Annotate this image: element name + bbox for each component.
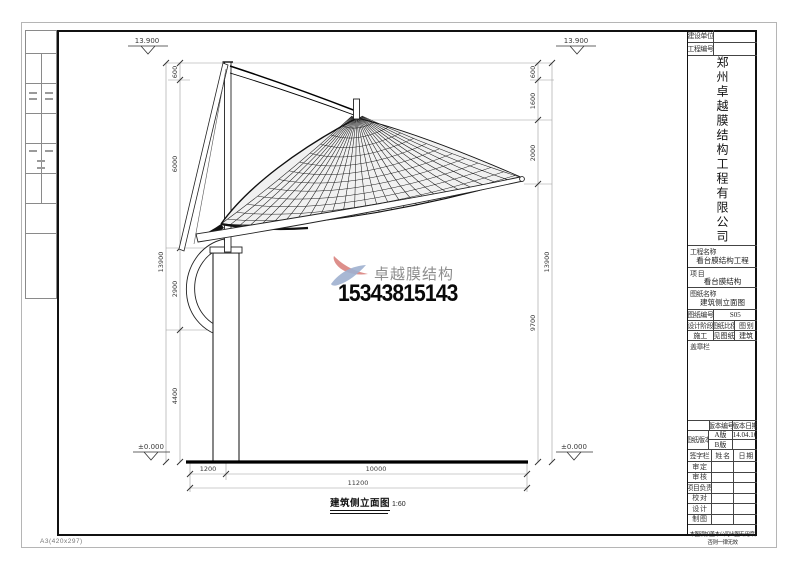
dim-label: 10000 [366, 465, 387, 473]
stay-rod [194, 69, 226, 244]
cables [230, 66, 356, 115]
version-label: 图纸版本 [688, 431, 709, 449]
dim-label: 2900 [171, 281, 179, 298]
owner-value [714, 30, 757, 42]
dim-label: 1600 [529, 93, 537, 110]
drawing-no-label: 图纸编号 [688, 310, 714, 320]
sign-row-label: 设 计 [688, 504, 712, 514]
drawing-name-cell: 图纸名称 建筑侧立面图 [688, 288, 757, 310]
right-dimension-chain: 600 1600 2000 9700 13900 [529, 66, 551, 331]
drawing-caption: 建筑侧立面图 1:60 [330, 493, 390, 514]
stamp-label: 盖章栏 [690, 342, 710, 352]
level-labels: 13.900 13.900 ±0.000 ±0.000 [135, 37, 589, 451]
level-label: ±0.000 [138, 443, 164, 451]
item-value: 看台膜结构 [688, 276, 757, 287]
owner-label: 建设单位 [688, 30, 714, 42]
drawing-title: 建筑侧立面图 [330, 495, 390, 511]
title-block: 建设单位 工程编号 郑州卓越膜结构工程有限公司 工程名称 看台膜结构工程 项 目… [687, 30, 757, 536]
category-label: 图 别 [735, 321, 757, 330]
dim-label: 4400 [171, 388, 179, 405]
version-b: B版 [709, 440, 733, 449]
paper-size-label: A3(420x297) [40, 538, 83, 545]
scale-value: 见图纸 [714, 331, 736, 340]
left-dimension-chain: 600 6000 2900 4400 13900 [157, 66, 179, 404]
company-name: 郑州卓越膜结构工程有限公司 [714, 56, 731, 245]
version-a-date: 14.04.16 [733, 431, 757, 439]
validity-note: 本图须加盖本公司出图专用章,否则一律无效 [688, 525, 757, 546]
bottom-dimension-chain: 1200 10000 11200 [200, 465, 387, 487]
phone-number: 15343815143 [338, 280, 458, 308]
scale-label: 图纸比例 [714, 321, 736, 330]
sign-row-label: 审 核 [688, 473, 712, 483]
apex-post [354, 99, 360, 119]
drawing-scale: 1:60 [392, 501, 406, 508]
item-cell: 项 目 看台膜结构 [688, 268, 757, 288]
dim-label: 2000 [529, 145, 537, 162]
stamp-cell: 盖章栏 [688, 341, 757, 421]
stage-value: 施工 [688, 331, 714, 340]
level-label: 13.900 [135, 37, 160, 45]
date-label: 日 期 [734, 450, 757, 461]
sign-row-label: 审 定 [688, 462, 712, 472]
dim-label: 13900 [157, 252, 165, 273]
project-no-value [714, 43, 757, 55]
version-b-date [733, 440, 757, 449]
category-value: 建筑 [735, 331, 757, 340]
dim-label: 13900 [543, 252, 551, 273]
stage-label: 设计阶段 [688, 321, 714, 330]
project-name-value: 看台膜结构工程 [688, 255, 757, 266]
project-no-label: 工程编号 [688, 43, 714, 55]
dim-label: 600 [529, 66, 537, 78]
version-no-label: 版本编号 [710, 421, 734, 430]
level-markers [128, 46, 596, 460]
level-label: 13.900 [564, 37, 589, 45]
version-date-label: 版本日期 [733, 421, 757, 430]
sign-label: 签字栏 [688, 450, 712, 461]
drawing-name-value: 建筑侧立面图 [688, 297, 757, 308]
sign-row-label: 制 图 [688, 515, 712, 525]
dim-label: 600 [171, 66, 179, 78]
inclined-strut [179, 63, 228, 251]
sign-row-label: 校 对 [688, 494, 712, 504]
name-label: 姓 名 [712, 450, 735, 461]
dim-label: 11200 [348, 479, 369, 487]
company-name-cell: 郑州卓越膜结构工程有限公司 [688, 56, 757, 246]
level-label: ±0.000 [561, 443, 587, 451]
drawing-sheet: 600 6000 2900 4400 13900 600 1600 2000 9… [0, 0, 800, 565]
dim-label: 1200 [200, 465, 217, 473]
drawing-no-value: S05 [714, 310, 757, 320]
column [210, 247, 242, 462]
dim-label: 6000 [171, 156, 179, 173]
sign-row-label: 项目负责 [688, 483, 712, 493]
version-a: A版 [709, 431, 733, 439]
dim-label: 9700 [529, 315, 537, 332]
project-name-cell: 工程名称 看台膜结构工程 [688, 246, 757, 268]
